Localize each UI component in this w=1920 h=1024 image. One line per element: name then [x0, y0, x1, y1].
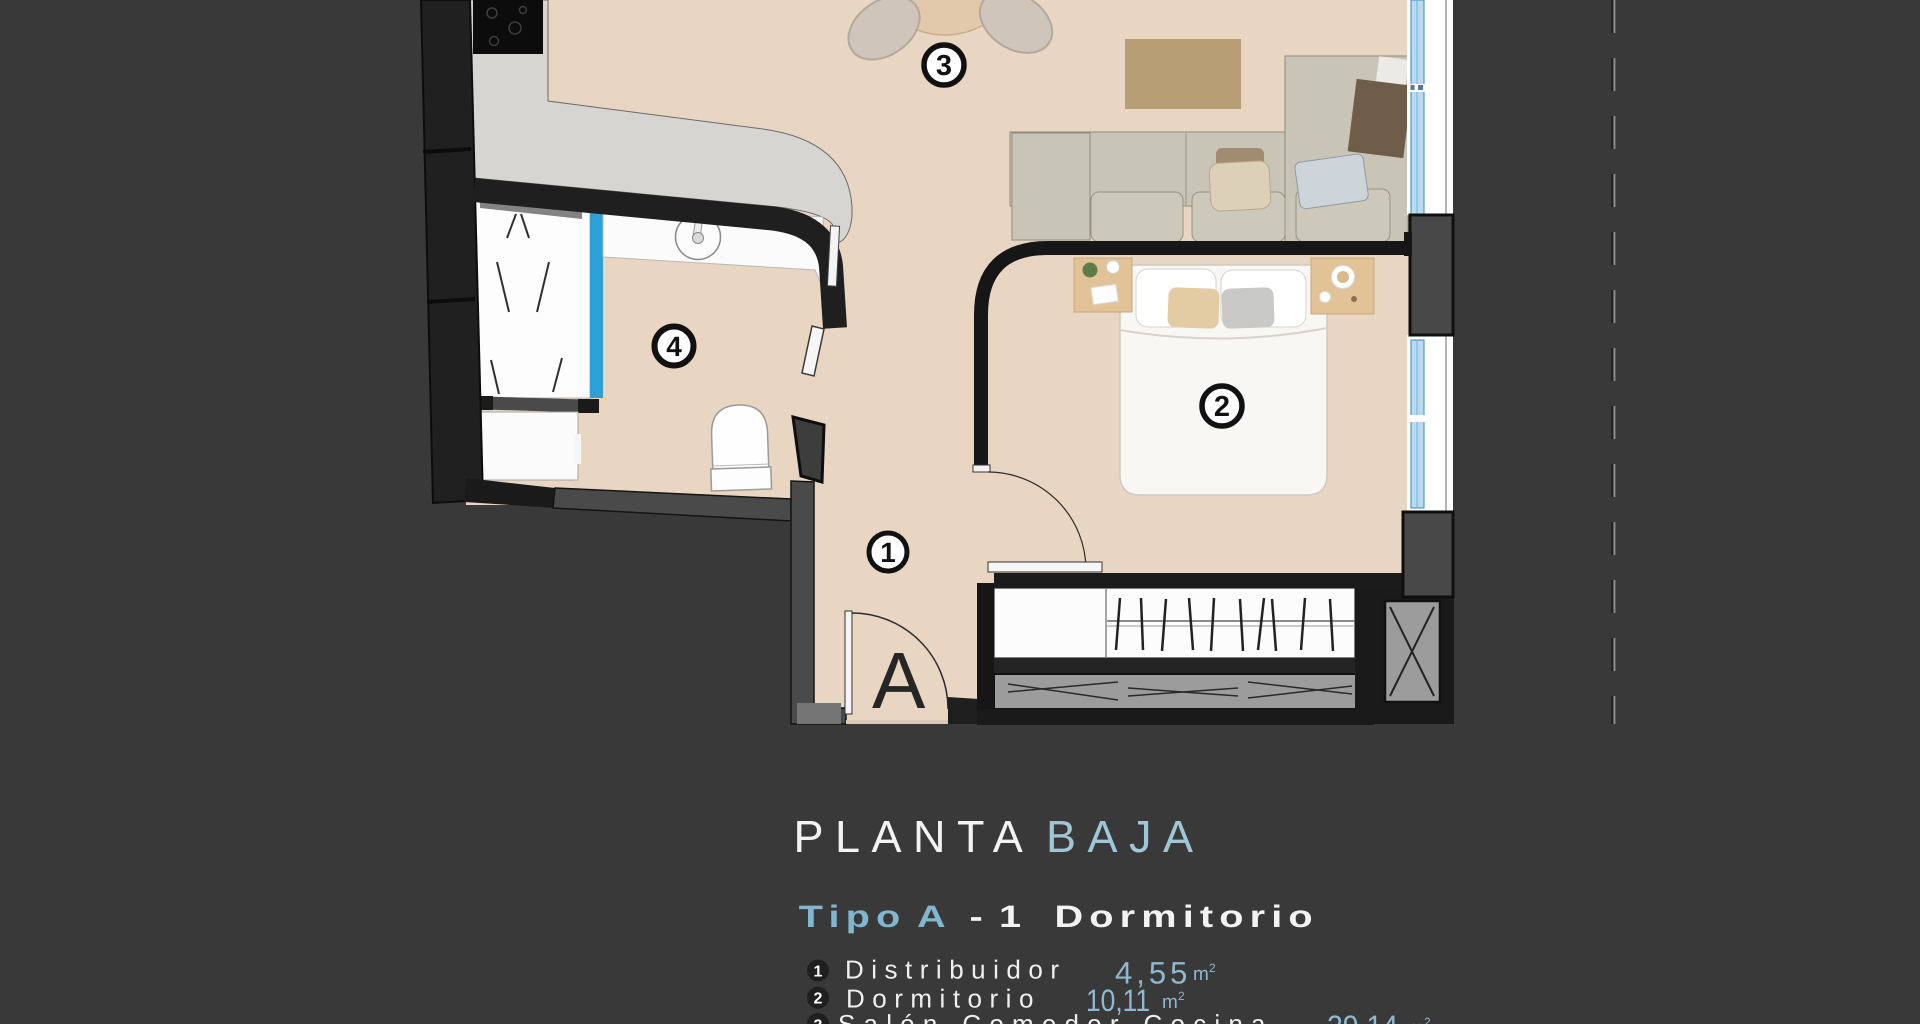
svg-text:4: 4 — [666, 331, 682, 362]
svg-text:2: 2 — [1214, 391, 1230, 423]
svg-text:-: - — [970, 899, 989, 934]
svg-text:Distribuidor: Distribuidor — [845, 955, 1067, 985]
svg-text:2: 2 — [1178, 989, 1185, 1003]
svg-text:3: 3 — [936, 50, 952, 82]
svg-text:2: 2 — [1424, 1015, 1431, 1024]
svg-text:A: A — [872, 636, 926, 725]
svg-text:m: m — [1193, 964, 1209, 985]
svg-text:3: 3 — [814, 1018, 823, 1024]
svg-text:m: m — [1408, 1018, 1424, 1024]
svg-text:1: 1 — [814, 964, 823, 981]
svg-text:Salón-Comedor-Cocina: Salón-Comedor-Cocina — [838, 1009, 1274, 1024]
svg-text:1: 1 — [999, 899, 1027, 934]
svg-text:BAJA: BAJA — [1046, 811, 1205, 862]
svg-text:Tipo: Tipo — [799, 899, 907, 934]
svg-text:29,14: 29,14 — [1327, 1009, 1398, 1024]
svg-text:PLANTA: PLANTA — [794, 811, 1035, 862]
svg-text:Dormitorio: Dormitorio — [1055, 899, 1319, 934]
svg-text:2: 2 — [814, 991, 823, 1008]
svg-text:1: 1 — [880, 537, 896, 568]
svg-text:A: A — [917, 899, 952, 934]
svg-text:2: 2 — [1209, 961, 1216, 975]
